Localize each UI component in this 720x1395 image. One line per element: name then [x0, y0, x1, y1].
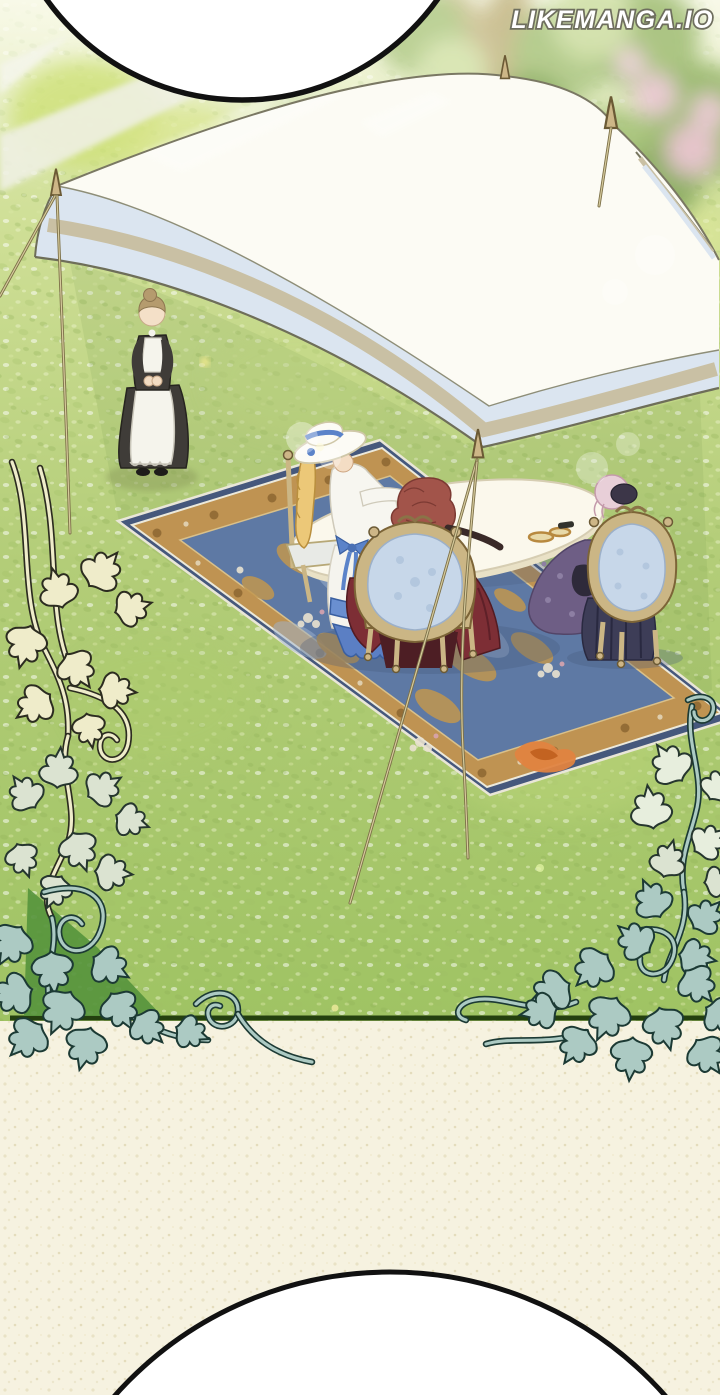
- maid-hair-bun: [144, 289, 157, 302]
- maid-apron-bib: [141, 338, 165, 372]
- maid-apron: [131, 388, 175, 464]
- watermark-text: LIKEMANGA.IO: [511, 6, 714, 34]
- chair-back-upholstery: [599, 524, 665, 611]
- dark-headpiece: [611, 484, 637, 504]
- manga-page: LIKEMANGA.IO: [0, 0, 720, 1395]
